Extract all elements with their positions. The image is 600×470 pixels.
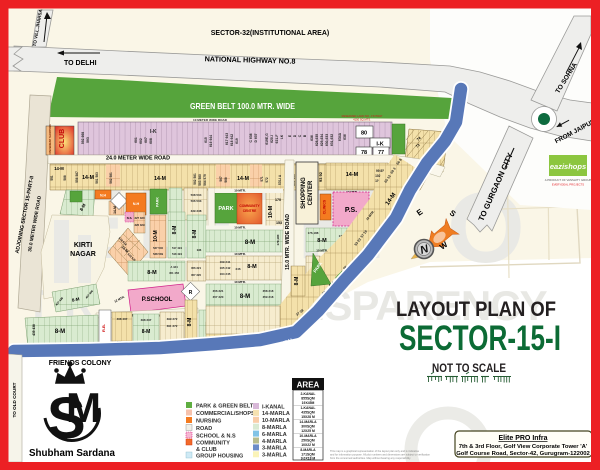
svg-text:CLINICS: CLINICS [323,199,327,214]
svg-text:PARK: PARK [218,206,233,212]
svg-text:4150 SQ.MTS.: 4150 SQ.MTS. [353,118,371,122]
svg-text:8-M: 8-M [147,270,157,276]
svg-text:I-K: I-K [280,134,284,139]
svg-text:170: 170 [275,198,281,202]
svg-text:2-KANAL: 2-KANAL [301,392,316,396]
svg-text:8-M: 8-M [240,294,250,300]
svg-text:250SQM: 250SQM [301,439,315,443]
svg-text:6-MARLA: 6-MARLA [262,432,287,438]
svg-text:Elite PRO Infra: Elite PRO Infra [498,435,547,442]
svg-text:14-M: 14-M [346,172,359,178]
svg-text:7th & 3rd Floor, Golf View Cor: 7th & 3rd Floor, Golf View Corporate Tow… [459,444,588,450]
svg-text:1-KANAL: 1-KANAL [301,406,316,410]
svg-text:TO DELHI: TO DELHI [64,60,97,67]
svg-text:FRIENDS COLONY: FRIENDS COLONY [49,360,112,367]
svg-text:165 242: 165 242 [220,266,231,270]
svg-text:This map is a graphical repres: This map is a graphical representation o… [330,449,420,453]
svg-text:10-M: 10-M [268,205,274,218]
svg-text:8-M: 8-M [294,277,300,286]
svg-text:617 643: 617 643 [225,133,229,145]
svg-text:P.S.: P.S. [345,207,357,214]
svg-text:563 580: 563 580 [198,174,202,186]
svg-text:Shubham Sardana: Shubham Sardana [29,447,115,459]
svg-text:PARK: PARK [156,197,160,207]
svg-text:618 642: 618 642 [230,134,234,146]
svg-text:14-MARLA: 14-MARLA [299,420,317,424]
svg-text:153: 153 [276,221,282,225]
svg-text:508 504: 508 504 [191,193,202,197]
svg-text:I-KANAL: I-KANAL [262,404,285,410]
svg-text:10 MTR.: 10 MTR. [234,280,246,284]
svg-text:M: M [66,384,101,431]
svg-text:327 330: 327 330 [134,216,145,220]
svg-text:14-M: 14-M [237,176,249,182]
svg-text:571: 571 [260,176,264,182]
svg-text:10 MTR.: 10 MTR. [316,249,328,253]
svg-text:GROUP HOUSING: GROUP HOUSING [196,454,243,460]
svg-text:PARK & GREEN BELT: PARK & GREEN BELT [196,404,254,410]
svg-text:NURSING: NURSING [196,419,221,425]
svg-text:and for information purpose. A: and for information purpose. All plot nu… [330,453,430,457]
svg-text:& CLUB: & CLUB [196,447,217,453]
svg-text:408 407: 408 407 [117,317,128,321]
svg-text:14-M: 14-M [54,166,64,171]
svg-text:8-MARLA: 8-MARLA [262,425,287,431]
svg-text:538 539: 538 539 [153,252,164,256]
svg-text:C 638: C 638 [249,133,253,142]
svg-text:179,180: 179,180 [276,234,280,245]
svg-text:246: 246 [235,267,240,271]
svg-text:567: 567 [219,176,223,182]
svg-text:COMMERCIAL/SHOPS: COMMERCIAL/SHOPS [196,411,255,417]
svg-text:591: 591 [50,175,54,181]
svg-text:14-M: 14-M [154,176,166,182]
svg-text:602: 602 [139,138,143,144]
svg-text:10 MTR.: 10 MTR. [234,189,246,193]
svg-text:COMMUNITY: COMMUNITY [196,441,230,447]
svg-text:3-MARLA: 3-MARLA [262,453,287,459]
svg-text:P.SCHOOL: P.SCHOOL [142,297,173,303]
svg-text:358 318: 358 318 [263,289,274,293]
svg-text:9.0X18 M: 9.0X18 M [301,457,316,461]
svg-text:568: 568 [224,177,228,183]
svg-text:593: 593 [86,137,90,143]
svg-text:537 540: 537 540 [153,246,164,250]
svg-text:3-MARLA: 3-MARLA [262,446,287,452]
svg-text:COMMUNITY: COMMUNITY [239,204,260,208]
svg-text:356 321: 356 321 [213,289,224,293]
svg-text:562 581: 562 581 [193,173,197,185]
svg-text:N.S.: N.S. [127,216,133,220]
svg-text:556 587: 556 587 [75,171,79,183]
svg-text:N.H: N.H [133,202,140,206]
svg-text:562 581: 562 581 [109,172,113,184]
svg-text:572: 572 [265,177,269,183]
svg-text:I-K: I-K [150,129,157,135]
svg-text:619E,G: 619E,G [265,133,269,145]
svg-text:CENTER: CENTER [308,180,314,205]
svg-text:134: 134 [197,248,202,252]
svg-text:15X28 M: 15X28 M [301,415,315,419]
svg-text:326 329: 326 329 [134,223,145,227]
svg-text:EVERYDEAL PROJECTS: EVERYDEAL PROJECTS [552,183,584,187]
svg-text:620-I: 620-I [270,135,274,143]
svg-text:10 METER WIDE ROAD: 10 METER WIDE ROAD [193,118,228,122]
svg-text:628,635: 628,635 [315,134,319,146]
svg-text:8-M: 8-M [247,264,257,270]
svg-text:357 320: 357 320 [213,295,224,299]
svg-text:GREEN BELT 100.0 MTR. WIDE: GREEN BELT 100.0 MTR. WIDE [190,102,295,111]
svg-text:I-K: I-K [376,142,383,148]
svg-text:631,632: 631,632 [330,134,334,146]
svg-text:616 644: 616 644 [209,135,213,147]
svg-text:D 637: D 637 [254,133,258,142]
svg-text:93 92: 93 92 [318,171,323,182]
svg-text:615: 615 [204,137,208,143]
svg-text:8-MARLA: 8-MARLA [300,448,316,452]
svg-text:CLUB: CLUB [59,129,66,148]
svg-text:10-MARLA: 10-MARLA [299,434,317,438]
svg-text:399 372: 399 372 [167,317,178,321]
svg-text:CONVENIENT SHOPPING: CONVENIENT SHOPPING [48,124,52,155]
svg-text:80: 80 [361,131,367,137]
svg-text:356 321: 356 321 [191,266,202,270]
svg-text:601: 601 [134,137,138,143]
svg-text:636: 636 [343,134,347,140]
svg-text:176,188: 176,188 [308,231,319,235]
svg-text:391 372: 391 372 [167,324,178,328]
svg-text:621-F: 621-F [275,135,279,144]
svg-text:A PRODUCT OF VANSHITY GROUP: A PRODUCT OF VANSHITY GROUP [545,178,592,182]
svg-text:10 MTR.: 10 MTR. [234,226,246,230]
svg-text:SECTOR-32(INSTITUTIONAL AREA): SECTOR-32(INSTITUTIONAL AREA) [211,30,330,37]
svg-text:564 579: 564 579 [203,174,207,186]
svg-text:619: 619 [235,138,239,144]
svg-text:CENTRE: CENTRE [243,209,257,213]
svg-text:855SQM: 855SQM [301,397,315,401]
svg-text:435SQM: 435SQM [301,411,315,415]
svg-text:eazishops: eazishops [550,162,586,171]
svg-text:561 583: 561 583 [95,172,99,184]
svg-text:A 434: A 434 [170,265,178,269]
svg-text:518 491: 518 491 [172,252,183,256]
svg-text:24.0 METER WIDE ROAD: 24.0 METER WIDE ROAD [106,156,170,162]
svg-text:14-M: 14-M [82,175,94,181]
svg-text:4-MARLA: 4-MARLA [262,439,287,445]
svg-text:NAGAR: NAGAR [70,251,96,258]
svg-text:451 456: 451 456 [169,271,180,275]
svg-text:300SQM: 300SQM [301,425,315,429]
svg-text:ROAD: ROAD [196,426,212,432]
svg-text:15.0 MTR. WIDE ROAD: 15.0 MTR. WIDE ROAD [285,214,291,270]
svg-text:SCHOOL & N.S: SCHOOL & N.S [196,434,236,440]
svg-text:SECTOR-15-I: SECTOR-15-I [399,318,561,358]
svg-text:357 320: 357 320 [191,273,202,277]
svg-text:592 668: 592 668 [81,132,85,144]
svg-text:607: 607 [144,137,148,143]
svg-text:439 438: 439 438 [32,324,36,336]
svg-text:RESERVED LAND NO. J 57/6047: RESERVED LAND NO. J 57/6047 [342,114,383,118]
svg-text:164 245: 164 245 [220,272,231,276]
svg-text:NOT TO SCALE: NOT TO SCALE [432,361,506,375]
svg-text:8-M: 8-M [187,318,193,327]
svg-text:169 241: 169 241 [220,260,231,264]
svg-text:8-M: 8-M [317,238,327,244]
svg-text:8-M: 8-M [192,230,198,239]
svg-text:SHOPPING: SHOPPING [301,177,307,209]
svg-text:12X25 M: 12X25 M [301,429,315,433]
svg-text:10 MTR.: 10 MTR. [234,252,246,256]
svg-text:8-M: 8-M [245,240,255,246]
svg-text:10-MARLA: 10-MARLA [262,418,290,424]
svg-text:R.B.: R.B. [101,324,106,332]
svg-text:570-I A: 570-I A [278,174,282,185]
svg-text:KIRTI: KIRTI [74,242,92,249]
svg-text:636: 636 [310,135,314,141]
svg-text:608: 608 [149,138,153,144]
svg-text:N.H: N.H [100,194,106,198]
svg-text:8-M: 8-M [55,329,65,335]
svg-text:517 491: 517 491 [172,246,183,250]
svg-text:19X45M: 19X45M [302,401,315,405]
svg-text:from the concerned authorities: from the concerned authorities. Map with… [330,456,411,460]
svg-text:8-M: 8-M [142,329,151,335]
svg-text:339 338: 339 338 [191,209,202,213]
svg-text:506 503: 506 503 [191,199,202,203]
svg-text:TO OLD COURT: TO OLD COURT [12,382,17,417]
svg-text:588: 588 [63,175,67,181]
svg-text:629,634: 629,634 [320,134,324,146]
svg-text:630,633: 630,633 [325,134,329,146]
svg-text:8-M: 8-M [172,226,178,235]
svg-text:398 397: 398 397 [141,318,152,322]
svg-text:10X22 M: 10X22 M [301,443,315,447]
svg-text:359 318: 359 318 [263,295,274,299]
svg-text:14-MARLA: 14-MARLA [262,411,290,417]
svg-text:634A: 634A [338,132,342,141]
svg-text:AREA: AREA [297,381,320,390]
svg-text:Golf Course Road, Sector-42, G: Golf Course Road, Sector-42, Gurugram-12… [456,451,590,457]
svg-text:10-M: 10-M [153,230,159,241]
svg-text:R: R [189,290,193,296]
